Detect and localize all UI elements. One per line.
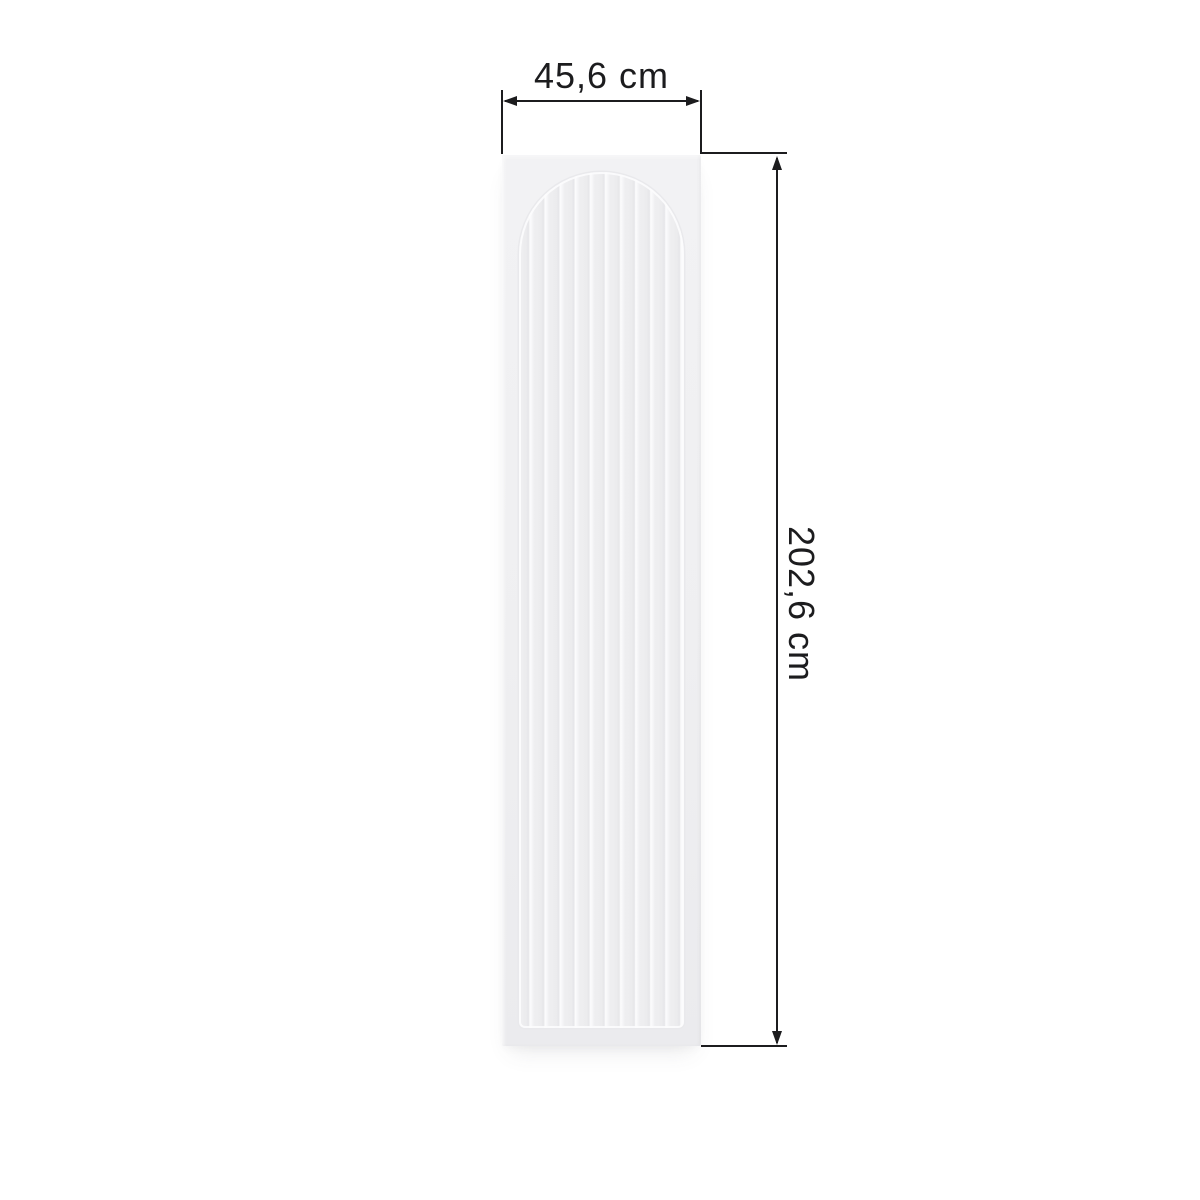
height-dimension-label: 202,6 cm xyxy=(783,526,819,682)
wardrobe-front-panel xyxy=(502,155,701,1046)
product-dimension-diagram: 45,6 cm 202,6 cm xyxy=(0,0,1200,1200)
height-extension-line-bottom xyxy=(701,1045,787,1047)
arrow-down-icon xyxy=(772,1031,782,1045)
arrow-right-icon xyxy=(686,96,700,106)
height-extension-line-top xyxy=(701,152,787,154)
fluted-arch-inset xyxy=(519,172,684,1028)
width-dimension-line xyxy=(505,100,698,102)
height-dimension-line xyxy=(776,158,778,1043)
arrow-up-icon xyxy=(772,156,782,170)
width-dimension-label: 45,6 cm xyxy=(503,58,700,94)
arrow-left-icon xyxy=(503,96,517,106)
width-extension-line-right xyxy=(700,90,702,154)
